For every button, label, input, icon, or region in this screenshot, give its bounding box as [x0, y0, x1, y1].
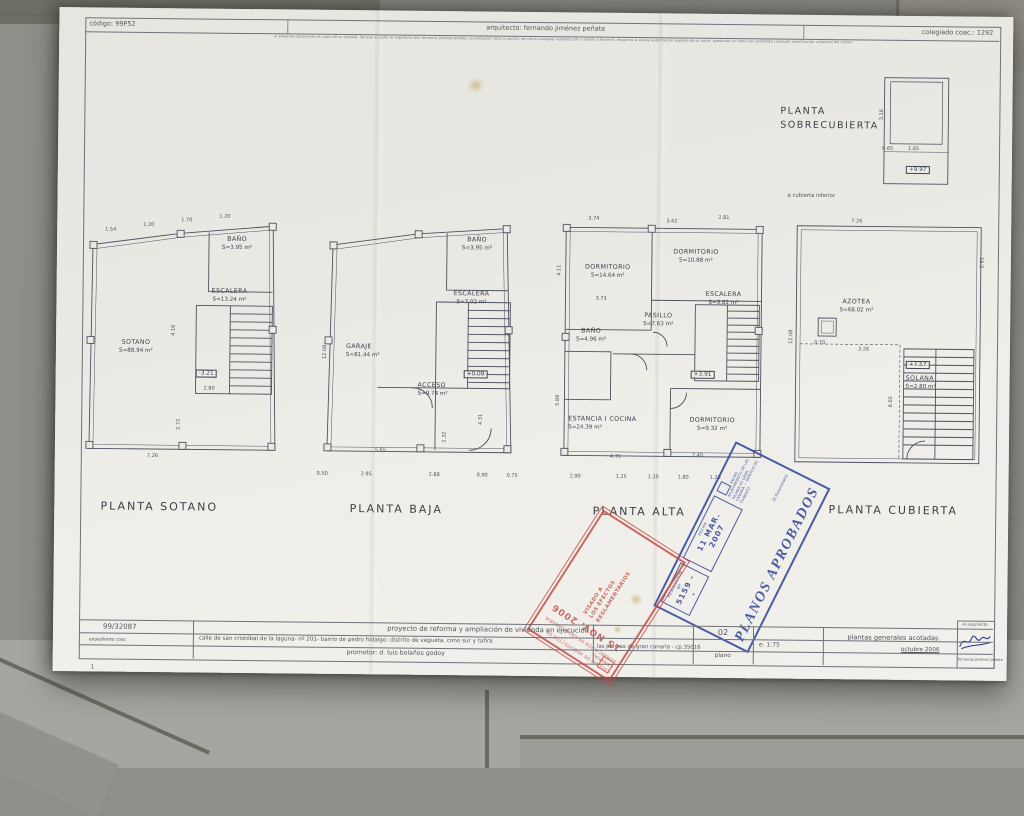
- sheet-number-label: plano: [693, 653, 753, 660]
- project-city: las palmas de gran canaria - cp.35016: [597, 644, 691, 651]
- room-label: SOTANO S=88.94 m²: [96, 338, 176, 355]
- handwritten-page-mark: 1: [91, 663, 95, 670]
- dim-label: 0.65: [882, 146, 893, 152]
- dim-label: 4.31: [478, 414, 484, 425]
- header-colegiado: colegiado coac.: 1292: [804, 25, 1000, 41]
- dim-label: 3.73: [595, 296, 606, 302]
- dim-label: 4.75: [610, 454, 621, 460]
- dim-label: 2.40: [692, 453, 703, 459]
- dim-label: 12.08: [322, 345, 328, 359]
- dim-label: 1.20: [219, 214, 230, 220]
- dim-label: 3.16: [879, 109, 885, 120]
- plan-title-sobrecubierta: PLANTA SOBRECUBIERTA: [780, 105, 879, 135]
- sobrecubierta-note: a cubierta inferior: [788, 193, 836, 199]
- room-label: ESTANCIA I COCINA S=24.39 m²: [568, 415, 664, 432]
- dim-label: 5.89: [555, 395, 561, 406]
- level-marker: -3.21: [196, 369, 217, 377]
- funcionario-label: El Funcionario: [771, 473, 789, 502]
- level-marker: +3.91: [691, 371, 715, 379]
- dim-label: 2.81: [718, 215, 729, 221]
- dim-label: 2.32: [442, 431, 448, 442]
- sobrecubierta-linework: [878, 74, 959, 193]
- dim-label: 1.54: [105, 227, 116, 233]
- dim-label: 2.95: [361, 471, 372, 477]
- dim-label: 3.74: [588, 216, 599, 222]
- plan-cubierta: AZOTEA S=68.02 m² SOLANA S=2.80 m² +7.57…: [787, 206, 990, 488]
- room-label: DORMITORIO S=9.32 m²: [676, 417, 748, 434]
- dim-label: 5.65: [375, 447, 386, 453]
- room-label: SOLANA S=2.80 m²: [906, 375, 960, 392]
- sotano-linework: [75, 198, 304, 466]
- room-label: DORMITORIO S=14.64 m²: [572, 263, 644, 280]
- dim-label: 0.90: [477, 472, 488, 478]
- dim-label: 1.80: [678, 475, 689, 481]
- dim-label: 3.26: [858, 346, 869, 352]
- sheet-number: 02: [693, 628, 753, 638]
- level-marker: +0.09: [464, 370, 488, 378]
- room-label: ACCESO S=9.74 m²: [417, 382, 487, 399]
- plan-sotano: SOTANO S=88.94 m² BAÑO S=3.95 m² ESCALER…: [75, 198, 304, 486]
- header-codigo: código: 99P52: [85, 17, 289, 33]
- floor-tile: [520, 739, 1024, 768]
- plan-title-sotano: PLANTA SOTANO: [79, 499, 239, 514]
- plan-title-baja: PLANTA BAJA: [316, 502, 476, 517]
- dim-label: 3.42: [666, 218, 677, 224]
- plan-baja: GARAJE S=81.44 m² BAÑO S=3.95 m² ESCALER…: [316, 201, 531, 489]
- blueprint-sheet: código: 99P52 arquitecto: fernando jimén…: [53, 7, 1014, 681]
- tile-grout-line: [485, 690, 489, 768]
- dim-label: 7.26: [147, 453, 158, 459]
- room-label: BAÑO S=4.96 m²: [565, 327, 617, 344]
- room-label: GARAJE S=81.44 m²: [346, 343, 426, 360]
- room-label: PASILLO S=7.63 m²: [627, 312, 689, 329]
- dim-label: 0.70: [814, 340, 825, 346]
- dim-label: 6.02: [888, 396, 894, 407]
- level-marker: +9.97: [906, 166, 930, 174]
- dim-label: 1.20: [143, 222, 154, 228]
- signature-name: fernando jiménez peñate: [958, 657, 992, 661]
- expediente-label: expediente coac: [89, 637, 126, 642]
- sheet-date: octubre 2006: [901, 647, 940, 653]
- room-label: BAÑO S=3.95 m²: [447, 236, 507, 253]
- plan-sobrecubierta: PLANTA SOBRECUBIERTA +9.97 3.16 1.65 0.6…: [779, 73, 960, 215]
- visado-text: VISADO A LOS EFECTOS REGLAMENTARIOS: [583, 574, 626, 625]
- dim-label: 4.11: [556, 265, 562, 276]
- room-label: DORMITORIO S=10.88 m²: [660, 248, 732, 265]
- dim-label: 2.90: [570, 473, 581, 479]
- dim-label: 4.16: [171, 325, 177, 336]
- plan-title-alta: PLANTA ALTA: [559, 504, 719, 519]
- dim-label: 1.70: [181, 217, 192, 223]
- room-label: BAÑO S=3.95 m²: [207, 236, 267, 253]
- dim-label: 2.80: [203, 386, 214, 392]
- photo-of-blueprint: { "header": { "codigo": "código: 99P52",…: [0, 0, 1024, 768]
- architect-signature: [958, 628, 992, 652]
- dim-label: 2.88: [429, 472, 440, 478]
- plan-title-cubierta: PLANTA CUBIERTA: [813, 503, 973, 518]
- scale-value: e. 1:75: [759, 641, 780, 648]
- dim-label: 1.25: [616, 474, 627, 480]
- dim-label: 0.50: [317, 471, 328, 477]
- expediente-number: 99/32087: [103, 623, 137, 631]
- room-label: ESCALERA S=9.82 m²: [687, 291, 759, 308]
- dim-label: 1.65: [908, 146, 919, 152]
- room-label: AZOTEA S=68.02 m²: [820, 298, 892, 315]
- dim-label: 7.26: [851, 218, 862, 224]
- sheet-contents: plantas generales acotadas: [825, 633, 961, 642]
- dim-label: 0.75: [507, 473, 518, 479]
- room-label: ESCALERA S=7.02 m²: [426, 290, 516, 307]
- signature-label: el arquitecto: [959, 621, 991, 626]
- level-marker: +7.57: [906, 361, 930, 369]
- dim-label: 1.20: [648, 474, 659, 480]
- dim-label: 2.72: [176, 419, 182, 430]
- dim-label: 2.91: [979, 257, 985, 268]
- dim-label: 12.08: [788, 330, 794, 344]
- room-label: ESCALERA S=13.24 m²: [184, 287, 274, 304]
